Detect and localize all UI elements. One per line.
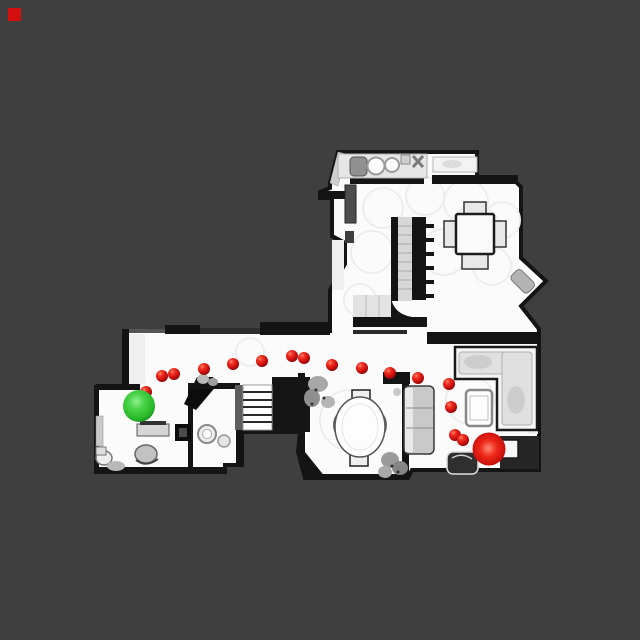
waypoint-dot — [298, 352, 310, 364]
waypoint-dot — [198, 363, 210, 375]
waypoint-dot — [457, 434, 469, 446]
waypoint-dot — [445, 401, 457, 413]
waypoint-dot — [412, 372, 424, 384]
waypoint-dot — [156, 370, 168, 382]
sink-basin — [368, 158, 385, 175]
waypoint-dot — [168, 368, 180, 380]
wall-top-right — [432, 175, 518, 184]
stair-wall-right — [412, 217, 426, 300]
wall-living-top — [427, 332, 539, 344]
stove — [350, 157, 367, 176]
floor-dot — [393, 388, 401, 396]
goal-sphere-red — [473, 433, 506, 466]
waypoint-dot — [256, 355, 268, 367]
sofa-small — [404, 386, 434, 454]
ottoman — [447, 452, 478, 474]
stairs-lower — [235, 385, 272, 430]
floorplan-viewer — [0, 0, 640, 640]
desk — [137, 424, 169, 436]
square-table — [456, 214, 494, 254]
waypoint-dot — [384, 367, 396, 379]
wall-shelf — [96, 416, 103, 446]
wall-dining-bottom — [305, 474, 408, 479]
stair-block — [272, 377, 310, 432]
scene-canvas — [0, 0, 640, 640]
waypoint-dot — [227, 358, 239, 370]
sink-basin — [385, 158, 399, 172]
start-sphere-green — [123, 390, 155, 422]
waypoint-dot — [443, 378, 455, 390]
red-square-indicator — [8, 8, 21, 21]
round-chair — [135, 445, 157, 463]
waypoint-dot — [326, 359, 338, 371]
chair — [462, 254, 488, 269]
stair-rail-left — [391, 217, 398, 301]
wall-corridor-strip — [353, 330, 407, 334]
waypoint-dot — [286, 350, 298, 362]
waypoint-dot — [356, 362, 368, 374]
wall-corridor-left — [124, 329, 129, 387]
coffee-table — [466, 390, 492, 426]
background — [0, 0, 640, 640]
